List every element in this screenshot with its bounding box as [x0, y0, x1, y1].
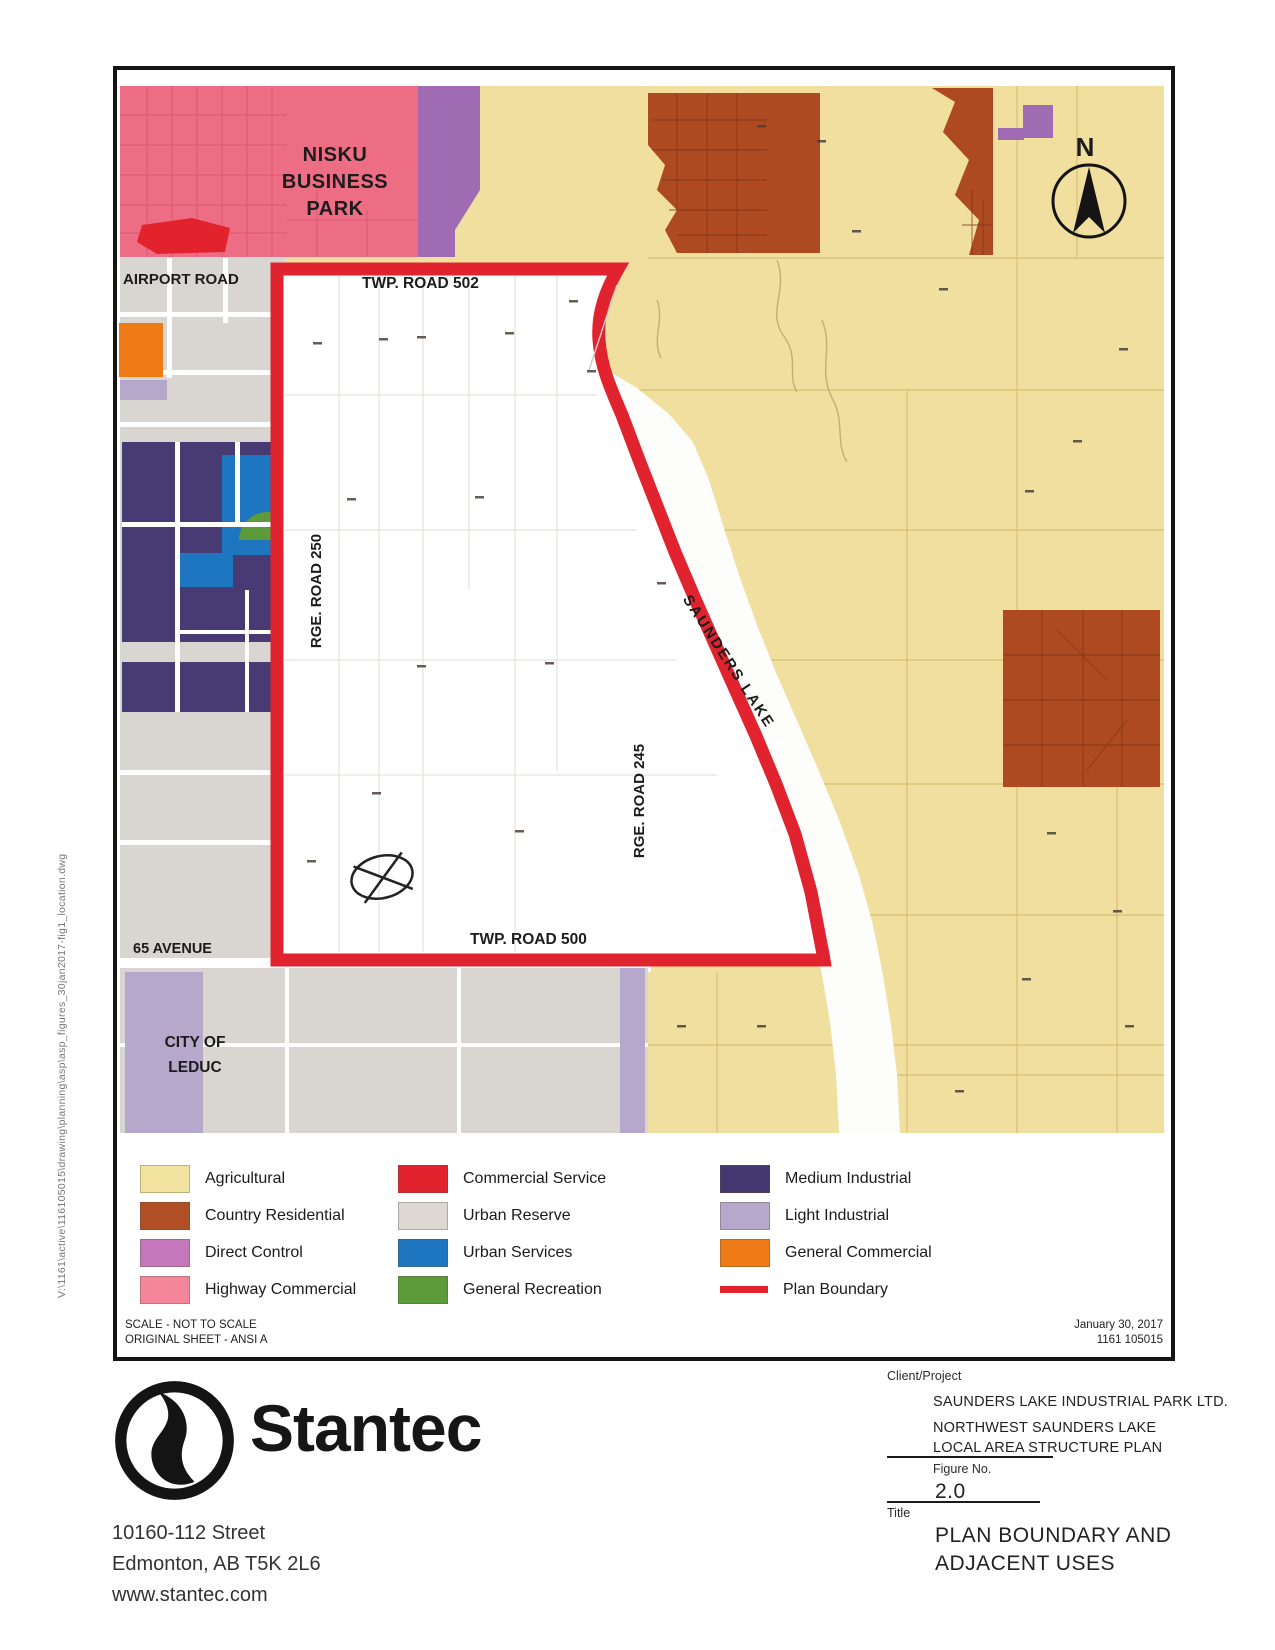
- stantec-logo-icon: [112, 1378, 237, 1503]
- legend-column-3: Medium Industrial Light Industrial Gener…: [720, 1160, 990, 1308]
- scale-notes: SCALE - NOT TO SCALE ORIGINAL SHEET - AN…: [125, 1318, 268, 1348]
- legend-column-2: Commercial Service Urban Reserve Urban S…: [398, 1160, 668, 1308]
- legend-item: Urban Reserve: [398, 1197, 668, 1234]
- label-rge-road-250: RGE. ROAD 250: [308, 521, 326, 661]
- legend-label: Agricultural: [205, 1170, 285, 1188]
- left-urban-strip: [119, 258, 295, 960]
- stantec-wordmark: Stantec: [250, 1390, 481, 1466]
- label-city-of-leduc: CITY OF LEDUC: [135, 1030, 255, 1080]
- legend-swatch-agricultural: [140, 1165, 190, 1193]
- legend-swatch-direct-control: [140, 1239, 190, 1267]
- figure-number-label: Figure No.: [933, 1462, 991, 1476]
- project-number: 1161 105015: [1074, 1333, 1163, 1348]
- legend-label: Medium Industrial: [785, 1170, 911, 1188]
- light-industrial-strip: [620, 968, 645, 1133]
- sheet-title-line-2: ADJACENT USES: [935, 1552, 1115, 1576]
- legend-item: Highway Commercial: [140, 1271, 410, 1308]
- sheet-title-line-1: PLAN BOUNDARY AND: [935, 1524, 1171, 1548]
- medium-industrial-area: [122, 442, 295, 712]
- date-text: January 30, 2017: [1074, 1318, 1163, 1333]
- legend-swatch-medium-industrial: [720, 1165, 770, 1193]
- map-frame: NISKU BUSINESS PARK AIRPORT ROAD TWP. RO…: [113, 66, 1175, 1361]
- address-line-3: www.stantec.com: [112, 1580, 321, 1611]
- general-commercial-block: [119, 323, 163, 377]
- urban-services-block-2: [177, 553, 233, 587]
- legend-item: Medium Industrial: [720, 1160, 990, 1197]
- land-use-map: [117, 70, 1171, 1133]
- legend-label: Plan Boundary: [783, 1281, 888, 1299]
- legend-item: Light Industrial: [720, 1197, 990, 1234]
- legend-swatch-urban-services: [398, 1239, 448, 1267]
- company-address: 10160-112 Street Edmonton, AB T5K 2L6 ww…: [112, 1518, 321, 1611]
- legend-label: Direct Control: [205, 1244, 303, 1262]
- legend-swatch-plan-boundary: [720, 1286, 768, 1293]
- legend-item: Plan Boundary: [720, 1271, 990, 1308]
- legend-item: Country Residential: [140, 1197, 410, 1234]
- address-line-2: Edmonton, AB T5K 2L6: [112, 1549, 321, 1580]
- scanned-plan-page: { "map": { "nisku_business_park": "NISKU…: [0, 0, 1275, 1650]
- legend-swatch-country-residential: [140, 1202, 190, 1230]
- legend-label: Commercial Service: [463, 1170, 606, 1188]
- project-name-line-1: NORTHWEST SAUNDERS LAKE: [933, 1420, 1156, 1436]
- label-65-avenue: 65 AVENUE: [133, 941, 212, 958]
- country-residential-3: [1003, 610, 1160, 787]
- legend-label: Highway Commercial: [205, 1281, 356, 1299]
- legend-swatch-light-industrial: [720, 1202, 770, 1230]
- legend-label: Urban Reserve: [463, 1207, 571, 1225]
- label-twp-road-502: TWP. ROAD 502: [362, 275, 479, 294]
- drawing-file-path: V:\1161\active\116105015\drawing\plannin…: [56, 854, 68, 1298]
- project-name-line-2: LOCAL AREA STRUCTURE PLAN: [933, 1440, 1162, 1456]
- rule-under-project: [887, 1456, 1053, 1458]
- client-project-label: Client/Project: [887, 1369, 961, 1383]
- date-notes: January 30, 2017 1161 105015: [1074, 1318, 1163, 1348]
- title-label: Title: [887, 1506, 910, 1520]
- rule-under-figure: [887, 1501, 1040, 1503]
- country-residential-1: [648, 93, 820, 253]
- label-nisku-business-park: NISKU BUSINESS PARK: [245, 142, 425, 223]
- client-name: SAUNDERS LAKE INDUSTRIAL PARK LTD.: [933, 1394, 1228, 1410]
- label-airport-road: AIRPORT ROAD: [123, 271, 239, 289]
- legend-label: Urban Services: [463, 1244, 572, 1262]
- legend-label: Light Industrial: [785, 1207, 889, 1225]
- legend-item: General Recreation: [398, 1271, 668, 1308]
- legend-swatch-highway-commercial: [140, 1276, 190, 1304]
- label-rge-road-245: RGE. ROAD 245: [631, 731, 649, 871]
- legend-swatch-urban-reserve: [398, 1202, 448, 1230]
- legend-swatch-commercial-service: [398, 1165, 448, 1193]
- legend-label: Country Residential: [205, 1207, 345, 1225]
- scale-note: SCALE - NOT TO SCALE: [125, 1318, 268, 1333]
- legend-column-1: Agricultural Country Residential Direct …: [140, 1160, 410, 1308]
- legend-item: General Commercial: [720, 1234, 990, 1271]
- legend-swatch-general-commercial: [720, 1239, 770, 1267]
- sheet-note: ORIGINAL SHEET - ANSI A: [125, 1333, 268, 1348]
- label-twp-road-500: TWP. ROAD 500: [470, 931, 587, 950]
- label-north: N: [1070, 132, 1100, 163]
- light-industrial-block-top: [120, 380, 167, 400]
- legend-item: Commercial Service: [398, 1160, 668, 1197]
- legend-label: General Recreation: [463, 1281, 602, 1299]
- legend-item: Agricultural: [140, 1160, 410, 1197]
- legend-swatch-general-recreation: [398, 1276, 448, 1304]
- legend-item: Urban Services: [398, 1234, 668, 1271]
- legend-item: Direct Control: [140, 1234, 410, 1271]
- address-line-1: 10160-112 Street: [112, 1518, 321, 1549]
- legend-label: General Commercial: [785, 1244, 932, 1262]
